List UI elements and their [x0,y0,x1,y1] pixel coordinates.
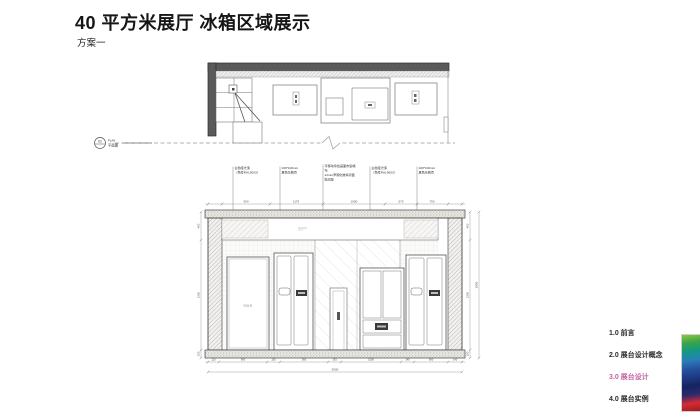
elevation-drawing: 白色哑光漆 （色号RAL9003） 100*100mm 黑色马赛克 可移动喷绘画… [190,160,490,380]
fridge-double-right [406,255,446,350]
floor-plan-drawing: 01 PLAN 平面图 [90,58,470,158]
fridge-sbs-label: SBS [243,303,253,308]
elevation-bottom-dimensions: 110 900 135 900 135 1500 140 900 140 500… [205,358,465,374]
door-handle [337,312,340,320]
fridge-french-door [360,268,404,350]
svg-text:135: 135 [332,358,337,362]
fridge-handle [279,288,290,295]
svg-text:400: 400 [465,223,469,228]
svg-text:400: 400 [196,223,200,228]
elevation-top-dimensions: 900 1175 1500 575 750 [205,199,465,205]
plan-boundary-line [115,136,455,150]
svg-text:900: 900 [243,199,248,203]
elevation-left-dimensions: 400 2300 150 [196,211,202,360]
svg-text:（色号RAL9003）: （色号RAL9003） [372,170,397,175]
svg-text:布: 布 [325,168,328,173]
svg-text:可移动喷绘画面布贴墙: 可移动喷绘画面布贴墙 [325,163,356,168]
glass-door [330,288,347,350]
fridge-sbs: SBS [227,257,269,350]
fridge-handle [411,288,422,295]
menu-item-booth-design[interactable]: 3.0 展台设计 [609,372,679,382]
svg-text:1500: 1500 [351,199,358,203]
svg-text:150: 150 [465,351,469,356]
svg-text:100*100mm: 100*100mm [282,166,299,170]
svg-text:110: 110 [211,358,216,362]
base-band [205,350,465,358]
svg-text:12mm厚钢化玻璃背面: 12mm厚钢化玻璃背面 [325,172,355,177]
svg-text:黑色马赛克: 黑色马赛克 [282,170,297,175]
page-subtitle: 方案一 [77,35,106,49]
svg-text:900: 900 [429,358,434,362]
svg-text:白色哑光漆: 白色哑光漆 [235,165,250,170]
ceiling-band [205,210,465,218]
svg-text:900: 900 [302,358,307,362]
total-width-dim: 5000 [332,368,339,372]
total-height-dim: 2850 [474,281,478,288]
wall-pier-left [208,218,222,350]
svg-text:白色哑光漆: 白色哑光漆 [372,165,387,170]
svg-text:135: 135 [271,358,276,362]
svg-text:1500: 1500 [368,358,374,362]
svg-text:贴高膜: 贴高膜 [325,177,334,182]
plan-marker-number: 01 [98,140,102,144]
elevation-body: SBS [205,210,465,358]
section-menu: 1.0 前言 2.0 展台设计概念 3.0 展台设计 4.0 展台实例 [609,328,679,416]
fridge-double-left [274,253,313,350]
svg-text:1175: 1175 [293,199,300,203]
svg-text:140: 140 [405,358,410,362]
svg-text:150: 150 [196,351,200,356]
svg-text:575: 575 [398,199,403,203]
plan-storage-grid [216,78,260,128]
brand-color-stripe [681,334,700,412]
slide: 40 平方米展厅 冰箱区域展示 方案一 01 PLAN 平面图 [0,0,700,417]
plan-marker-name-en: PLAN [108,139,115,143]
svg-text:140: 140 [453,358,458,362]
menu-item-foreword[interactable]: 1.0 前言 [609,328,679,338]
svg-text:100*100mm: 100*100mm [419,166,436,170]
svg-text:黑色马赛克: 黑色马赛克 [419,170,434,175]
plan-fridge-boxes [233,78,437,143]
svg-text:2300: 2300 [196,291,200,298]
svg-text:900: 900 [241,358,246,362]
svg-text:750: 750 [429,199,434,203]
page-title: 40 平方米展厅 冰箱区域展示 [75,9,311,35]
menu-item-design-concept[interactable]: 2.0 展台设计概念 [609,350,679,360]
wall-pier-right [448,218,462,350]
svg-text:（色号RAL9003）: （色号RAL9003） [235,170,260,175]
elevation-right-dimensions: 400 2300 150 2850 [465,211,480,360]
menu-item-booth-examples[interactable]: 4.0 展台实例 [609,394,679,404]
svg-text:2300: 2300 [465,291,469,298]
